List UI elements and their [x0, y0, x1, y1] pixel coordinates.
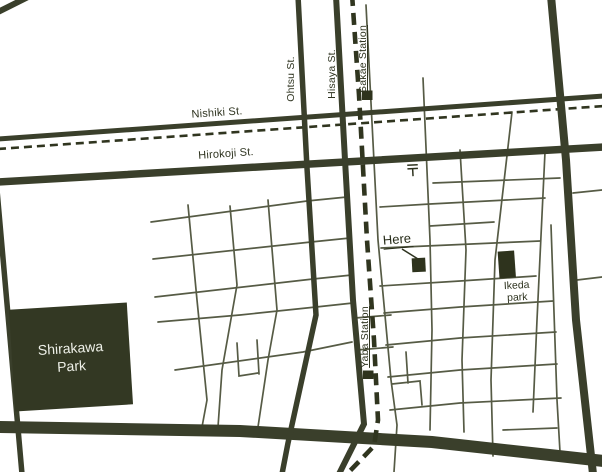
ikeda-park-label-line2: park: [507, 290, 528, 303]
here-label: Here: [382, 230, 414, 250]
post-office-icon: [407, 165, 418, 177]
top-left-road: [0, 0, 32, 13]
ikeda-park-label: Ikeda park: [504, 280, 531, 304]
map-canvas: Nishiki St. Hirokoji St. Ohtsu St. Hisay…: [0, 0, 602, 472]
nishiki-median-dashed: [0, 106, 602, 149]
shirakawa-park-area: Shirakawa Park: [9, 302, 133, 411]
shirakawa-park-label-line1: Shirakawa: [37, 337, 103, 359]
ohtsu-street-label: Ohtsu St.: [285, 56, 297, 102]
shirakawa-park-label-line2: Park: [57, 356, 87, 376]
hirokoji-street-road: [0, 147, 602, 182]
here-marker: [412, 258, 426, 273]
hisaya-street-label: Hisaya St.: [326, 49, 338, 99]
yaba-station-marker: [363, 371, 374, 380]
here-leader-line: [402, 249, 418, 259]
yaba-station-label: Yaba Station: [359, 306, 371, 368]
ikeda-park-marker: [498, 250, 516, 278]
sakae-station-label: Sakae Station: [357, 25, 369, 93]
bottom-road: [0, 427, 602, 461]
